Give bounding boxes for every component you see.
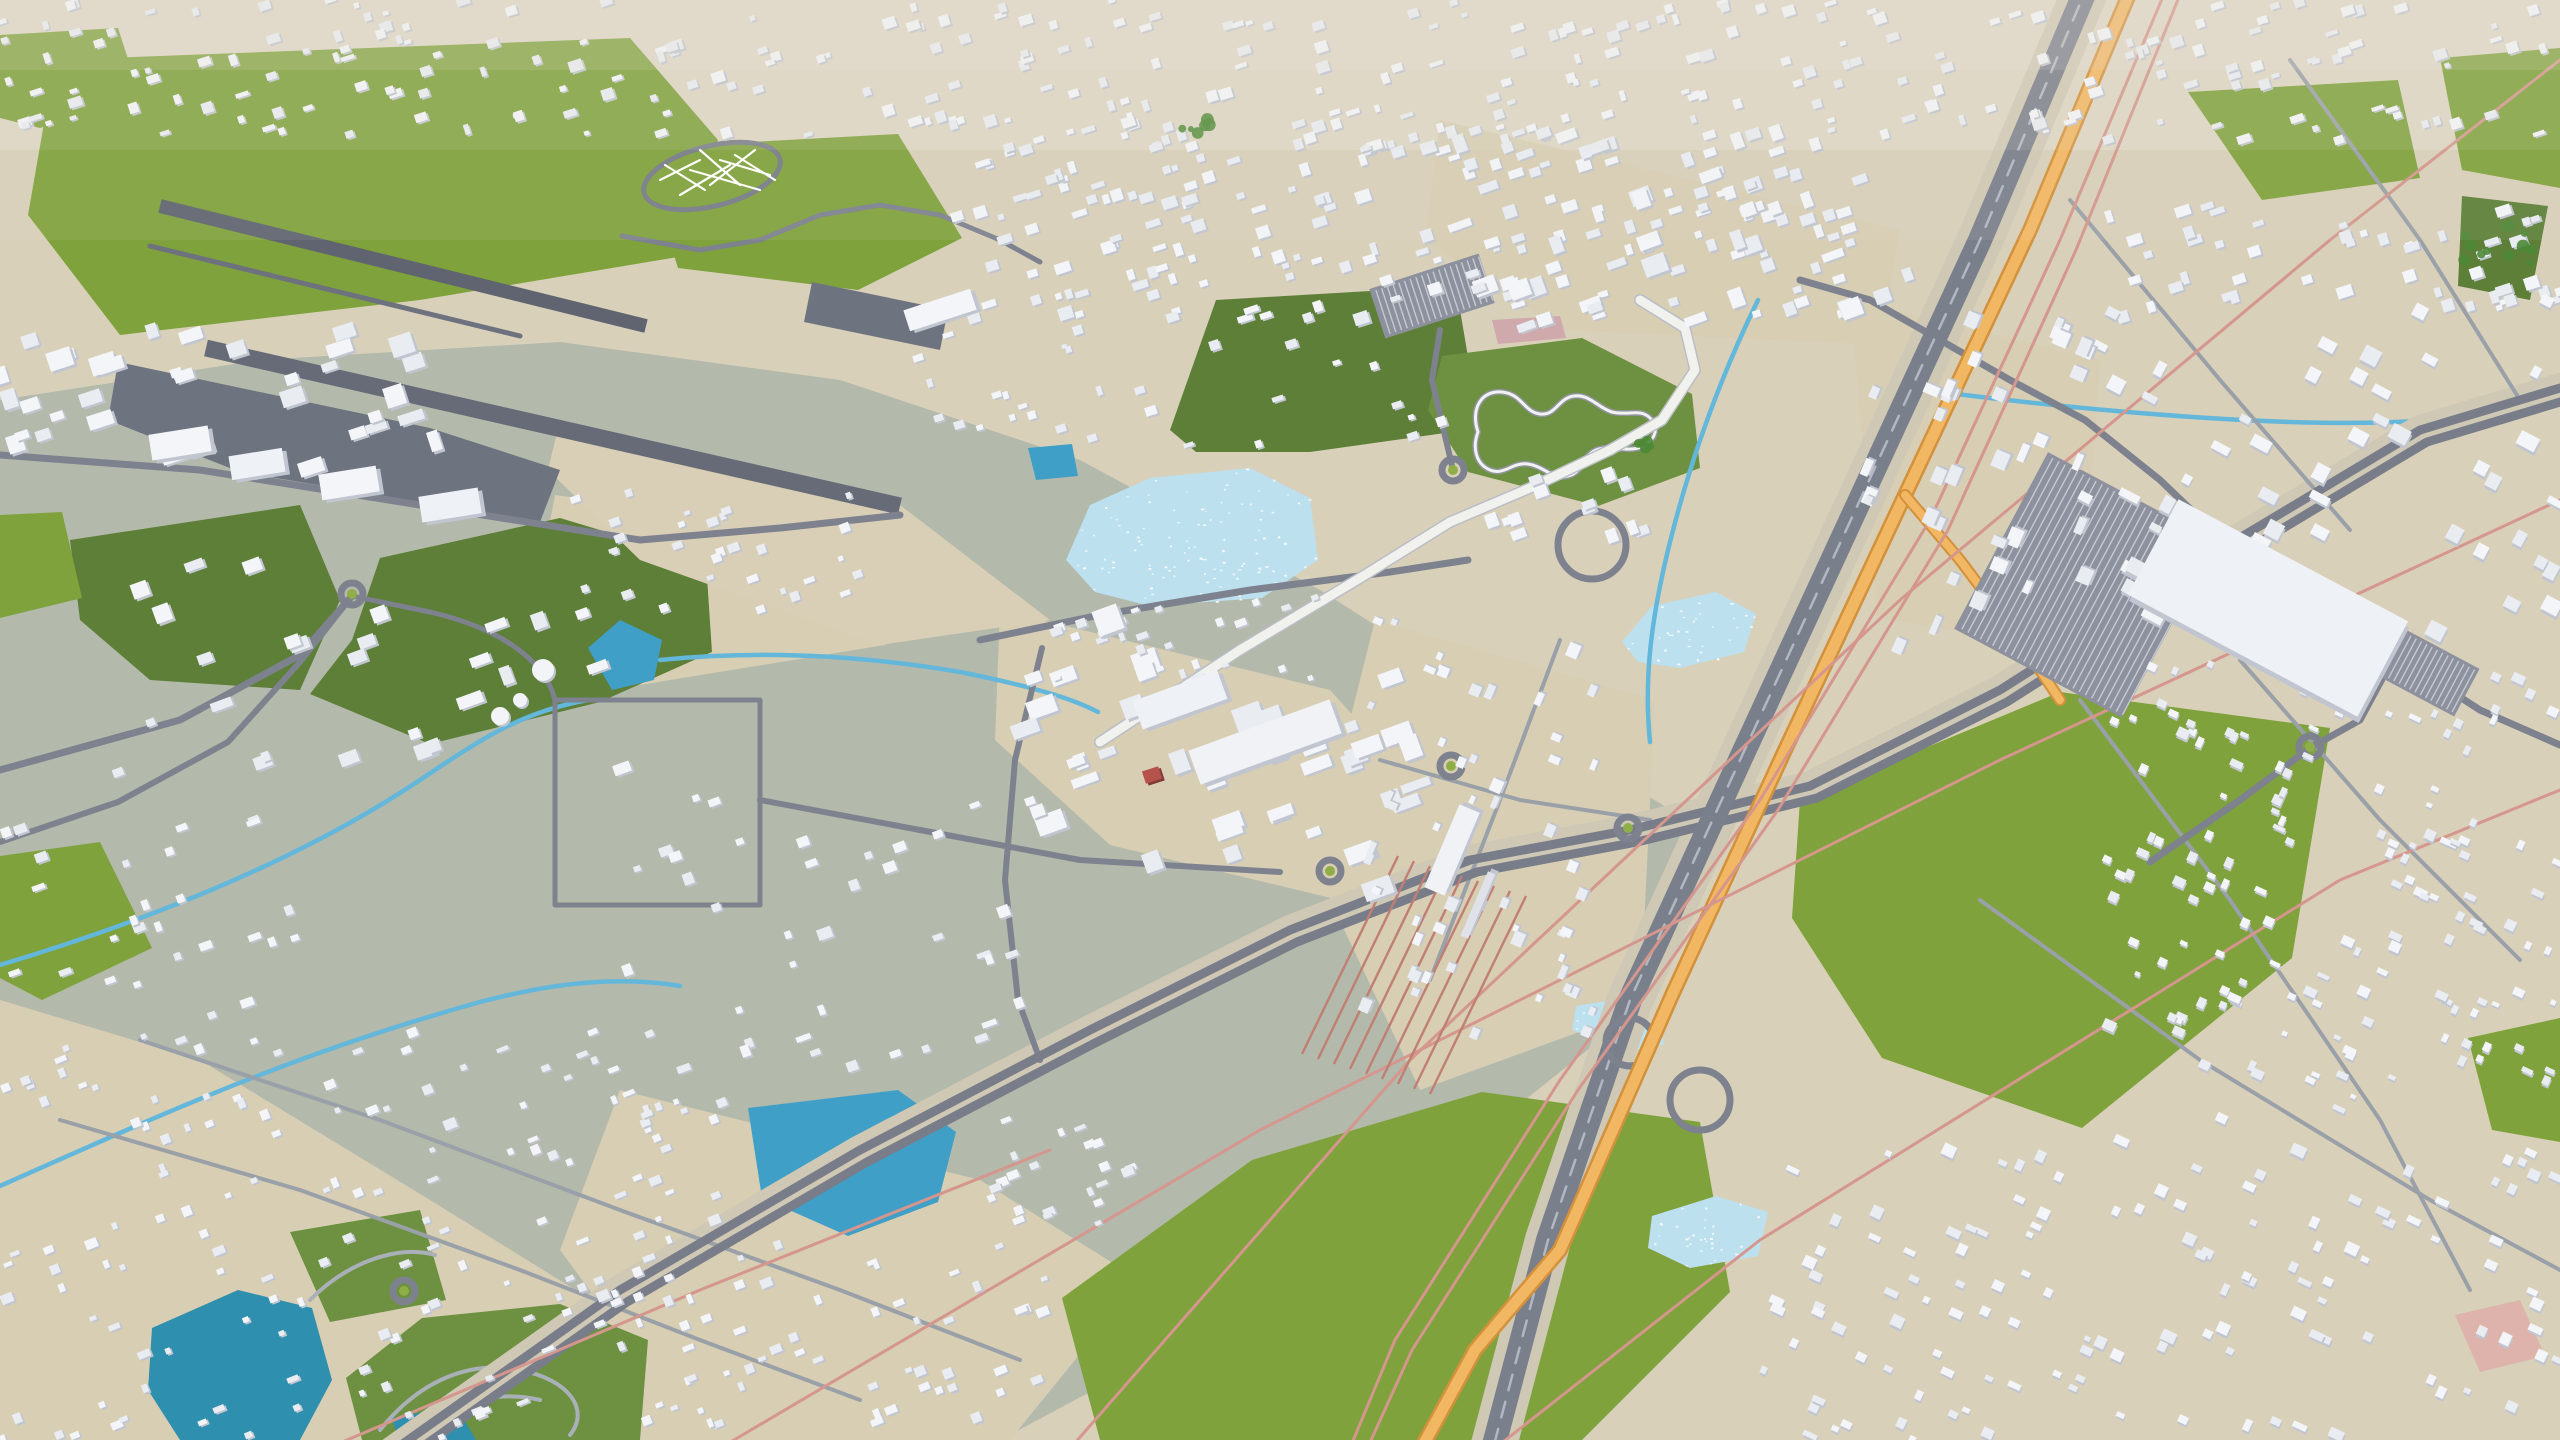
- water-sparkle: [1258, 530, 1260, 532]
- water-sparkle: [1745, 615, 1748, 617]
- water-sparkle: [1118, 525, 1120, 526]
- water-sparkle: [1093, 589, 1096, 590]
- storage-tank-0: [532, 659, 554, 681]
- water-sparkle: [1721, 1249, 1723, 1251]
- water-sparkle: [1697, 659, 1699, 661]
- water-sparkle: [1093, 535, 1095, 537]
- water-sparkle: [1168, 537, 1171, 538]
- water-sparkle: [1681, 1208, 1683, 1209]
- tree: [2465, 240, 2476, 251]
- water-sparkle: [1686, 631, 1689, 633]
- tree: [2526, 259, 2533, 266]
- water-sparkle: [1170, 546, 1172, 548]
- water-sparkle: [1700, 1250, 1702, 1252]
- water-sparkle: [1104, 559, 1106, 561]
- water-sparkle: [1680, 610, 1683, 612]
- water-sparkle: [1213, 569, 1216, 570]
- water-sparkle: [1188, 547, 1191, 548]
- water-sparkle: [1260, 519, 1262, 521]
- water-sparkle: [1228, 512, 1230, 513]
- water-sparkle: [1730, 603, 1732, 605]
- roundabout-island-3: [1325, 866, 1335, 876]
- water-sparkle: [1699, 652, 1702, 654]
- water-sparkle: [1683, 617, 1685, 618]
- water-sparkle: [1733, 618, 1735, 620]
- roundabout-island-5: [399, 1286, 409, 1296]
- water-sparkle: [1256, 553, 1259, 555]
- water-sparkle: [1140, 544, 1143, 545]
- water-sparkle: [1309, 499, 1312, 500]
- water-sparkle: [1149, 568, 1151, 570]
- water-sparkle: [1205, 559, 1207, 561]
- water-sparkle: [1221, 502, 1223, 503]
- water-sparkle: [1210, 519, 1212, 521]
- water-sparkle: [1658, 1235, 1660, 1236]
- water-sparkle: [1224, 489, 1226, 491]
- water-sparkle: [1134, 549, 1136, 551]
- water-sparkle: [1203, 524, 1206, 526]
- water-sparkle: [1162, 577, 1165, 578]
- water-sparkle: [1250, 504, 1252, 506]
- tree: [2458, 254, 2470, 266]
- water-sparkle: [1284, 575, 1287, 577]
- water-sparkle: [1757, 1216, 1760, 1218]
- water-sparkle: [1144, 597, 1146, 598]
- water-sparkle: [1704, 1227, 1706, 1229]
- water-sparkle: [1150, 587, 1153, 589]
- water-sparkle: [1205, 511, 1207, 512]
- water-sparkle: [1184, 552, 1186, 554]
- water-sparkle: [1750, 626, 1753, 628]
- water-sparkle: [1226, 484, 1228, 486]
- water-sparkle: [1677, 631, 1680, 633]
- water-sparkle: [1173, 576, 1175, 578]
- water-sparkle: [1315, 558, 1318, 560]
- map-viewport: [0, 0, 2560, 1440]
- water-sparkle: [1110, 517, 1112, 518]
- city-3d-map: [0, 0, 2560, 1440]
- water-sparkle: [1220, 570, 1223, 572]
- water-sparkle: [1152, 573, 1154, 575]
- water-sparkle: [1278, 536, 1280, 538]
- water-sparkle: [1241, 565, 1243, 566]
- water-sparkle: [1201, 508, 1204, 510]
- water-sparkle: [1204, 573, 1206, 575]
- water-sparkle: [1138, 540, 1140, 542]
- water-sparkle: [1112, 567, 1115, 568]
- roundabout-island-8: [2305, 742, 2315, 752]
- water-sparkle: [1740, 1246, 1742, 1248]
- water-sparkle: [1173, 566, 1175, 568]
- tree: [1642, 436, 1653, 447]
- water-sparkle: [1272, 570, 1275, 572]
- water-sparkle: [1265, 566, 1268, 568]
- water-sparkle: [1108, 572, 1110, 573]
- water-sparkle: [1137, 537, 1140, 539]
- water-sparkle: [1235, 472, 1237, 474]
- water-sparkle: [1254, 540, 1257, 541]
- water-sparkle: [1126, 496, 1129, 497]
- water-sparkle: [1241, 504, 1243, 505]
- water-sparkle: [1657, 659, 1660, 661]
- water-sparkle: [1632, 643, 1634, 644]
- water-sparkle: [1735, 1253, 1737, 1255]
- water-sparkle: [1149, 501, 1151, 503]
- water-sparkle: [1686, 1245, 1688, 1247]
- water-sparkle: [1233, 574, 1235, 576]
- water-north-pondlet: [1028, 444, 1078, 480]
- water-sparkle: [1223, 562, 1226, 564]
- water-sparkle: [1304, 566, 1306, 568]
- water-sparkle: [1165, 566, 1168, 568]
- water-sparkle: [1729, 640, 1731, 641]
- water-sparkle: [1143, 528, 1145, 529]
- water-sparkle: [1693, 621, 1696, 623]
- water-sparkle: [1664, 650, 1667, 652]
- water-sparkle: [1576, 1028, 1578, 1030]
- roundabout-island-2: [1446, 761, 1456, 771]
- water-sparkle: [1216, 601, 1219, 603]
- water-sparkle: [1712, 1233, 1714, 1235]
- water-sparkle: [1688, 1237, 1690, 1239]
- water-sparkle: [1194, 546, 1196, 547]
- water-sparkle: [1186, 541, 1188, 542]
- water-sparkle: [1258, 571, 1261, 573]
- water-sparkle: [1148, 565, 1151, 566]
- water-sparkle: [1704, 1238, 1706, 1240]
- water-sparkle: [1710, 1263, 1712, 1265]
- water-sparkle: [1688, 639, 1691, 640]
- storage-tank-1: [491, 707, 509, 725]
- water-sparkle: [1223, 550, 1225, 552]
- water-sparkle: [1258, 490, 1260, 491]
- water-sparkle: [1705, 1208, 1707, 1210]
- water-sparkle: [1224, 539, 1226, 541]
- water-sparkle: [1690, 1243, 1692, 1245]
- water-sparkle: [1667, 632, 1669, 634]
- water-sparkle: [1714, 1260, 1716, 1261]
- water-sparkle: [1077, 565, 1080, 566]
- water-sparkle: [1692, 1235, 1694, 1237]
- roundabout-island-1: [1448, 465, 1458, 475]
- water-sparkle: [1700, 1239, 1703, 1241]
- water-sparkle: [1717, 658, 1719, 660]
- haze-3: [0, 150, 2560, 240]
- water-sparkle: [1733, 603, 1735, 604]
- water-sparkle: [1710, 1238, 1713, 1240]
- water-sparkle: [1213, 578, 1216, 579]
- water-sparkle: [1261, 510, 1264, 512]
- water-sparkle: [1711, 1247, 1713, 1249]
- water-sparkle: [1083, 567, 1086, 569]
- storage-tank-2: [513, 693, 527, 707]
- water-sparkle: [1202, 559, 1205, 560]
- water-sparkle: [1239, 599, 1242, 601]
- haze-2: [0, 70, 2560, 150]
- water-sparkle: [1238, 569, 1241, 570]
- water-sparkle: [1686, 1265, 1689, 1266]
- water-sparkle: [1272, 512, 1275, 513]
- tree: [2483, 247, 2491, 255]
- water-sparkle: [1085, 550, 1088, 552]
- water-sparkle: [1112, 561, 1115, 563]
- water-sparkle: [1101, 568, 1103, 570]
- water-sparkle: [1273, 480, 1276, 482]
- water-sparkle: [1116, 519, 1118, 521]
- water-sparkle: [1258, 568, 1261, 570]
- water-sparkle: [1685, 1238, 1688, 1240]
- water-sparkle: [1246, 469, 1249, 471]
- water-sparkle: [1243, 563, 1245, 565]
- water-sparkle: [1660, 1224, 1663, 1226]
- water-sparkle: [1173, 510, 1175, 512]
- water-sparkle: [1155, 480, 1157, 482]
- water-sparkle: [1672, 635, 1674, 636]
- roundabout-island-0: [347, 589, 357, 599]
- water-sparkle: [1583, 1012, 1586, 1013]
- water-sparkle: [1698, 603, 1701, 604]
- water-sparkle: [1754, 616, 1756, 618]
- water-sparkle: [1688, 646, 1691, 647]
- water-sparkle: [1177, 522, 1180, 523]
- water-sparkle: [1736, 627, 1739, 628]
- water-sparkle: [1186, 492, 1188, 493]
- water-sparkle: [1699, 613, 1701, 614]
- roundabout-island-4: [1623, 823, 1633, 833]
- water-sparkle: [1669, 635, 1672, 636]
- water-sparkle: [1677, 664, 1680, 666]
- water-sparkle: [1706, 1241, 1708, 1242]
- water-sparkle: [1197, 524, 1199, 525]
- water-sparkle: [1695, 618, 1697, 619]
- tree: [2517, 240, 2530, 253]
- water-sparkle: [1147, 494, 1150, 495]
- water-sparkle: [1661, 606, 1664, 608]
- water-sparkle: [1238, 595, 1240, 597]
- water-sparkle: [1577, 1020, 1579, 1021]
- water-sparkle: [1704, 1219, 1706, 1221]
- water-sparkle: [1701, 646, 1703, 647]
- water-sparkle: [1658, 637, 1660, 638]
- water-sparkle: [1287, 494, 1289, 495]
- water-sparkle: [1105, 507, 1107, 509]
- water-sparkle: [1080, 530, 1083, 531]
- water-sparkle: [1628, 648, 1630, 649]
- water-sparkle: [1151, 594, 1154, 596]
- water-sparkle: [1675, 1226, 1678, 1228]
- water-sparkle: [1740, 1203, 1742, 1205]
- water-sparkle: [1712, 1226, 1714, 1228]
- water-sparkle: [1236, 578, 1238, 580]
- water-sparkle: [1187, 560, 1189, 562]
- tree: [2504, 250, 2515, 261]
- water-sparkle: [1207, 582, 1209, 584]
- water-sparkle: [1298, 503, 1300, 505]
- water-sparkle: [1711, 1243, 1714, 1245]
- water-sparkle: [1712, 626, 1714, 627]
- water-sparkle: [1126, 531, 1129, 533]
- haze-1: [0, 0, 2560, 70]
- water-sparkle: [1168, 570, 1171, 572]
- water-sparkle: [1263, 537, 1266, 539]
- water-sparkle: [1219, 521, 1222, 522]
- water-sparkle: [1200, 558, 1203, 560]
- water-sparkle: [1284, 543, 1287, 545]
- water-sparkle: [1220, 586, 1222, 587]
- water-sparkle: [1654, 1243, 1656, 1245]
